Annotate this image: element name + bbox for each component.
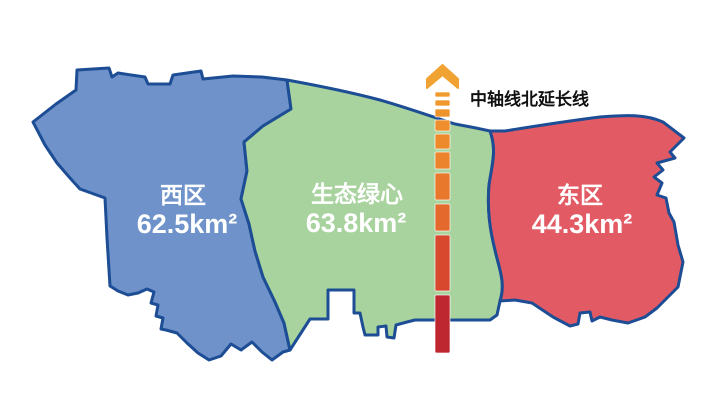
axis-dash [435,120,450,131]
axis-dash [435,92,450,97]
axis-dash [435,100,450,106]
region-green-heart-name-label: 生态绿心 [311,181,403,207]
region-east-area-value: 44.3km² [532,209,633,239]
district-map-canvas: 西区 62.5km² 生态绿心 63.8km² 东区 44.3km² 中轴线北延… [0,0,718,407]
axis-dash [435,295,450,353]
axis-dash [435,204,450,231]
axis-extension-line-label: 中轴线北延长线 [470,89,589,109]
axis-dash [435,134,450,149]
axis-dash [435,109,450,117]
axis-arrow-up-icon [427,65,458,88]
region-east-name-label: 东区 [557,182,603,208]
axis-dash [435,173,450,200]
axis-dash [435,235,450,291]
region-green-heart-area-value: 63.8km² [306,208,407,238]
district-map-figure: 西区 62.5km² 生态绿心 63.8km² 东区 44.3km² 中轴线北延… [0,0,718,407]
region-west-area-value: 62.5km² [137,209,238,239]
region-west-name-label: 西区 [160,182,206,208]
axis-dash [435,152,450,169]
